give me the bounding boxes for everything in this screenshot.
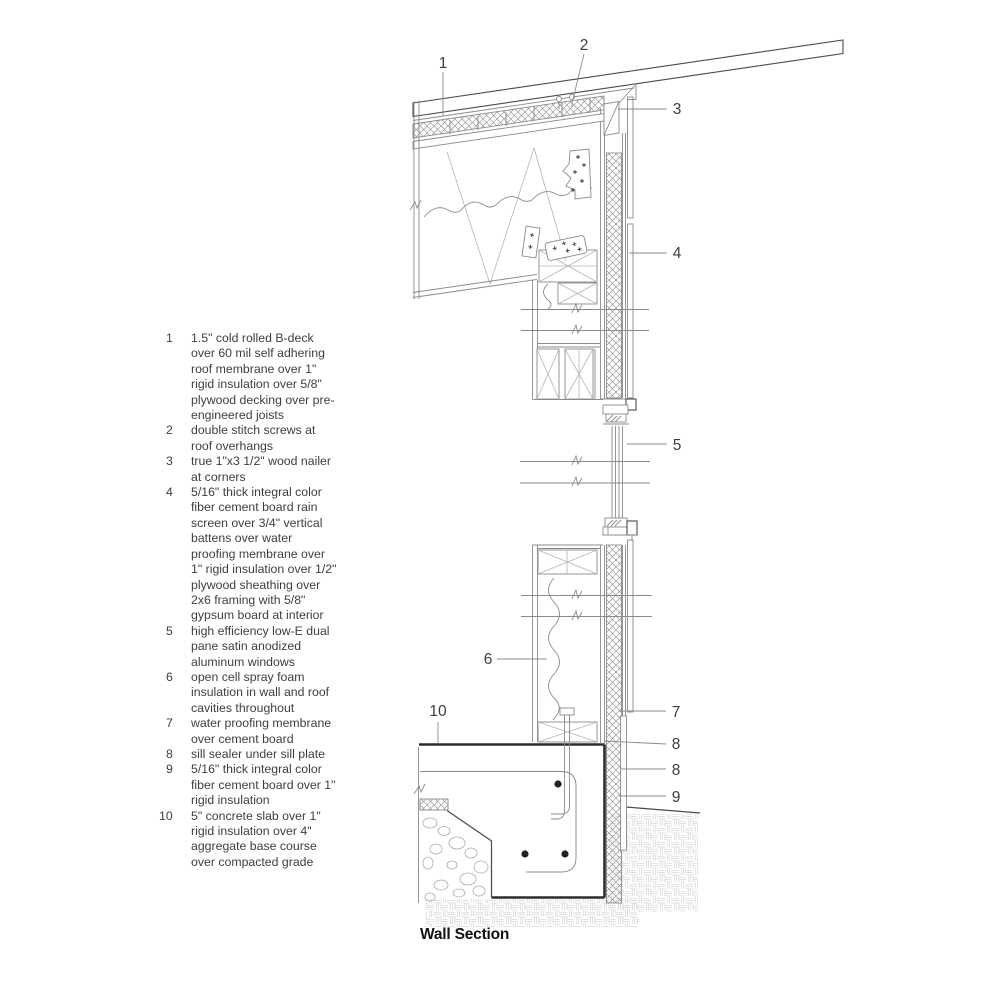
callouts: 1 2 3 4 5 6 7 8 8 9 10 bbox=[429, 37, 681, 806]
callout-6: 6 bbox=[484, 651, 493, 668]
upper-wall-framing bbox=[533, 250, 604, 400]
under-slab-rigid-insulation bbox=[420, 799, 448, 810]
rain-screen-panel bbox=[628, 97, 634, 218]
legend-item: 8sill sealer under sill plate bbox=[166, 747, 344, 762]
legend-item-text: water proofing membrane over cement boar… bbox=[191, 716, 337, 747]
lower-wall-framing bbox=[533, 545, 604, 744]
legend-item-number: 9 bbox=[166, 762, 181, 808]
grade-line bbox=[626, 807, 700, 813]
legend-item-text: 5" concrete slab over 1" rigid insulatio… bbox=[191, 809, 337, 871]
legend-item-number: 10 bbox=[159, 809, 181, 871]
aggregate-base-hatch bbox=[425, 814, 698, 927]
legend-item: 95/16" thick integral color fiber cement… bbox=[166, 762, 344, 808]
window-sill bbox=[603, 518, 637, 541]
legend-item-text: open cell spray foam insulation in wall … bbox=[191, 670, 337, 716]
rain-screen-panel bbox=[628, 540, 634, 712]
rebar-dots bbox=[521, 780, 568, 857]
rubble-stone-hatch bbox=[423, 818, 488, 901]
roof-assembly bbox=[410, 40, 843, 299]
callout-9: 9 bbox=[672, 789, 681, 806]
legend-item: 2double stitch screws at roof overhangs bbox=[166, 423, 344, 454]
wall-rigid-insulation-upper bbox=[607, 153, 622, 398]
legend-item: 105" concrete slab over 1" rigid insulat… bbox=[166, 809, 344, 871]
joist-connector-plate bbox=[563, 149, 591, 199]
legend-item-text: 5/16" thick integral color fiber cement … bbox=[191, 485, 337, 624]
legend-item: 5high efficiency low-E dual pane satin a… bbox=[166, 624, 344, 670]
wall-rigid-insulation-lower bbox=[607, 545, 622, 903]
callout-2: 2 bbox=[580, 37, 589, 54]
legend-item-text: double stitch screws at roof overhangs bbox=[191, 423, 337, 454]
legend-item-number: 8 bbox=[166, 747, 181, 762]
window-assembly bbox=[600, 399, 637, 541]
legend-item-number: 1 bbox=[166, 331, 181, 423]
legend-item-text: high efficiency low-E dual pane satin an… bbox=[191, 624, 337, 670]
callout-4: 4 bbox=[673, 245, 682, 262]
callout-5: 5 bbox=[673, 437, 682, 454]
legend-item: 45/16" thick integral color fiber cement… bbox=[166, 485, 344, 624]
legend-item-text: true 1"x3 1/2" wood nailer at corners bbox=[191, 454, 337, 485]
legend-item: 6open cell spray foam insulation in wall… bbox=[166, 670, 344, 716]
joist-connector-plate bbox=[522, 226, 540, 258]
window-head bbox=[600, 399, 636, 424]
callout-3: 3 bbox=[673, 101, 682, 118]
legend-item-number: 7 bbox=[166, 716, 181, 747]
material-legend: 11.5" cold rolled B-deck over 60 mil sel… bbox=[166, 331, 344, 870]
legend-item-number: 6 bbox=[166, 670, 181, 716]
legend-item: 3true 1"x3 1/2" wood nailer at corners bbox=[166, 454, 344, 485]
roof-bottom-chord bbox=[413, 274, 537, 297]
spray-foam-upper bbox=[544, 284, 552, 309]
legend-item-text: 1.5" cold rolled B-deck over 60 mil self… bbox=[191, 331, 337, 423]
legend-item: 7water proofing membrane over cement boa… bbox=[166, 716, 344, 747]
callout-10: 10 bbox=[429, 703, 447, 720]
legend-item-text: 5/16" thick integral color fiber cement … bbox=[191, 762, 337, 808]
callout-8a: 8 bbox=[672, 736, 681, 753]
wall-section-sheet: 11.5" cold rolled B-deck over 60 mil sel… bbox=[0, 0, 1000, 1000]
wall-section-drawing: 1 2 3 4 5 6 7 8 8 9 10 bbox=[0, 0, 1000, 1000]
anchor-bolt-nut bbox=[560, 708, 574, 715]
legend-item-number: 5 bbox=[166, 624, 181, 670]
wall-sheathing bbox=[601, 108, 605, 744]
window-glass bbox=[612, 426, 623, 518]
gypsum-board-lower bbox=[533, 545, 538, 742]
callout-1: 1 bbox=[439, 55, 448, 72]
spray-foam-lower bbox=[549, 578, 560, 720]
legend-item-number: 3 bbox=[166, 454, 181, 485]
legend-item-number: 4 bbox=[166, 485, 181, 624]
callout-7: 7 bbox=[672, 704, 681, 721]
legend-item-number: 2 bbox=[166, 423, 181, 454]
rain-screen-panel bbox=[628, 224, 634, 398]
foundation-fiber-cement bbox=[621, 716, 627, 850]
slab-rebar bbox=[420, 772, 576, 873]
legend-item: 11.5" cold rolled B-deck over 60 mil sel… bbox=[166, 331, 344, 423]
spray-foam-roof bbox=[424, 186, 592, 217]
figure-title: Wall Section bbox=[420, 926, 509, 944]
legend-item-text: sill sealer under sill plate bbox=[191, 747, 337, 762]
callout-8b: 8 bbox=[672, 762, 681, 779]
